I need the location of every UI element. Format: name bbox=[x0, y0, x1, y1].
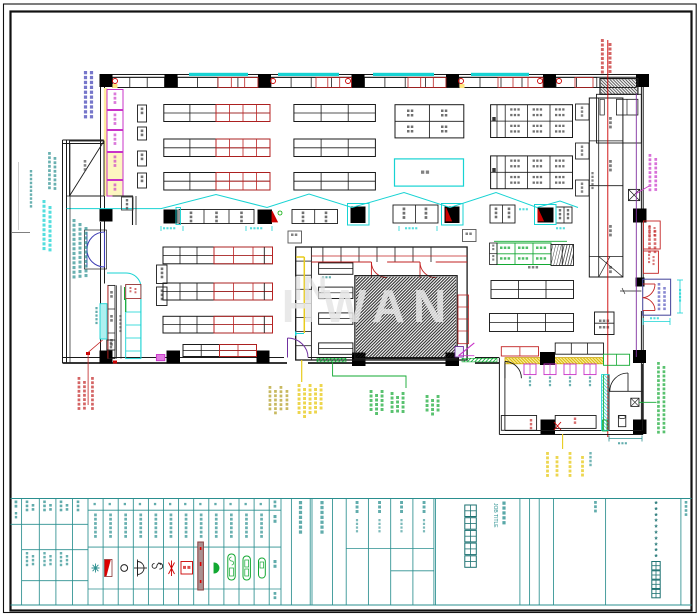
svg-text:JOB TITLE: JOB TITLE bbox=[492, 503, 498, 528]
svg-text:IN: IN bbox=[293, 270, 327, 308]
